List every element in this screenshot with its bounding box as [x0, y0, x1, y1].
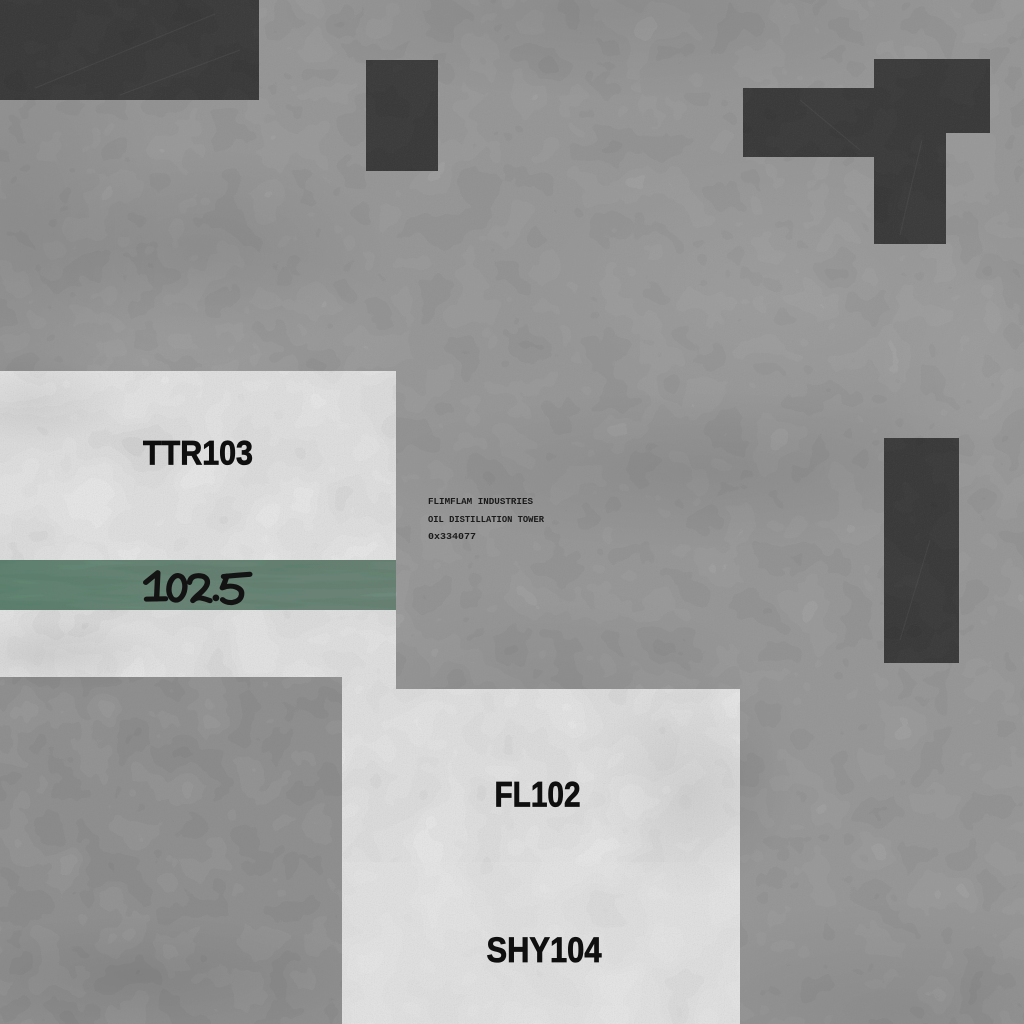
- svg-text:FLIMFLAM INDUSTRIES: FLIMFLAM INDUSTRIES: [428, 497, 534, 507]
- svg-text:OIL DISTILLATION TOWER: OIL DISTILLATION TOWER: [428, 515, 545, 525]
- svg-text:0x334077: 0x334077: [428, 532, 476, 542]
- svg-text:TTR103: TTR103: [143, 435, 253, 473]
- svg-text:FL102: FL102: [495, 776, 581, 815]
- svg-text:SHY104: SHY104: [487, 930, 602, 970]
